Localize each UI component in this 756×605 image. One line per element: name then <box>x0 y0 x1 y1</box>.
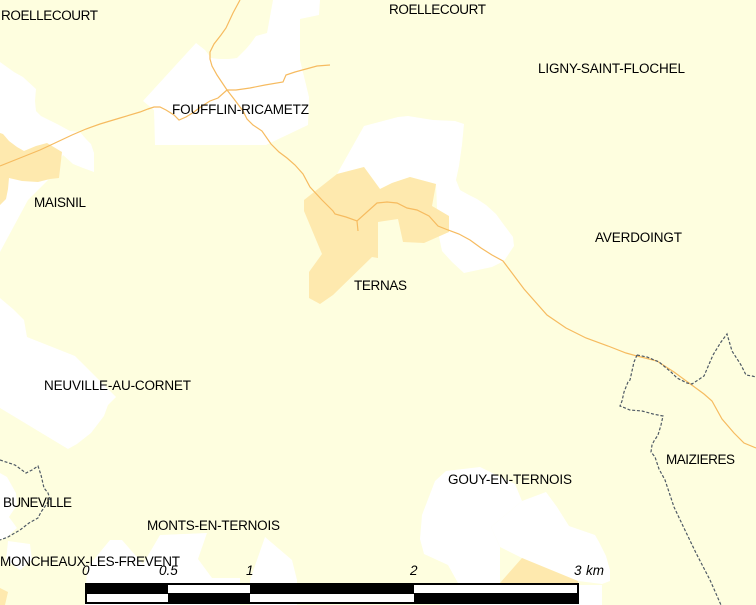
svg-text:GOUY-EN-TERNOIS: GOUY-EN-TERNOIS <box>448 472 572 487</box>
svg-text:3: 3 <box>574 563 582 578</box>
svg-text:FOUFFLIN-RICAMETZ: FOUFFLIN-RICAMETZ <box>172 102 309 117</box>
svg-text:NEUVILLE-AU-CORNET: NEUVILLE-AU-CORNET <box>44 378 191 393</box>
svg-text:2: 2 <box>409 563 418 578</box>
svg-text:0: 0 <box>82 563 90 578</box>
svg-text:ROELLECOURT: ROELLECOURT <box>1 8 98 23</box>
svg-text:ROELLECOURT: ROELLECOURT <box>389 2 486 17</box>
svg-text:LIGNY-SAINT-FLOCHEL: LIGNY-SAINT-FLOCHEL <box>538 61 685 76</box>
svg-text:0.5: 0.5 <box>159 563 178 578</box>
svg-text:MONCHEAUX-LES-FREVENT: MONCHEAUX-LES-FREVENT <box>0 554 180 569</box>
svg-text:BUNEVILLE: BUNEVILLE <box>3 495 72 510</box>
svg-text:MAIZIERES: MAIZIERES <box>666 452 735 467</box>
svg-text:km: km <box>586 563 604 578</box>
svg-text:1: 1 <box>246 563 254 578</box>
svg-text:TERNAS: TERNAS <box>354 278 407 293</box>
svg-text:AVERDOINGT: AVERDOINGT <box>595 230 682 245</box>
svg-text:MAISNIL: MAISNIL <box>34 195 86 210</box>
svg-text:MONTS-EN-TERNOIS: MONTS-EN-TERNOIS <box>147 518 280 533</box>
